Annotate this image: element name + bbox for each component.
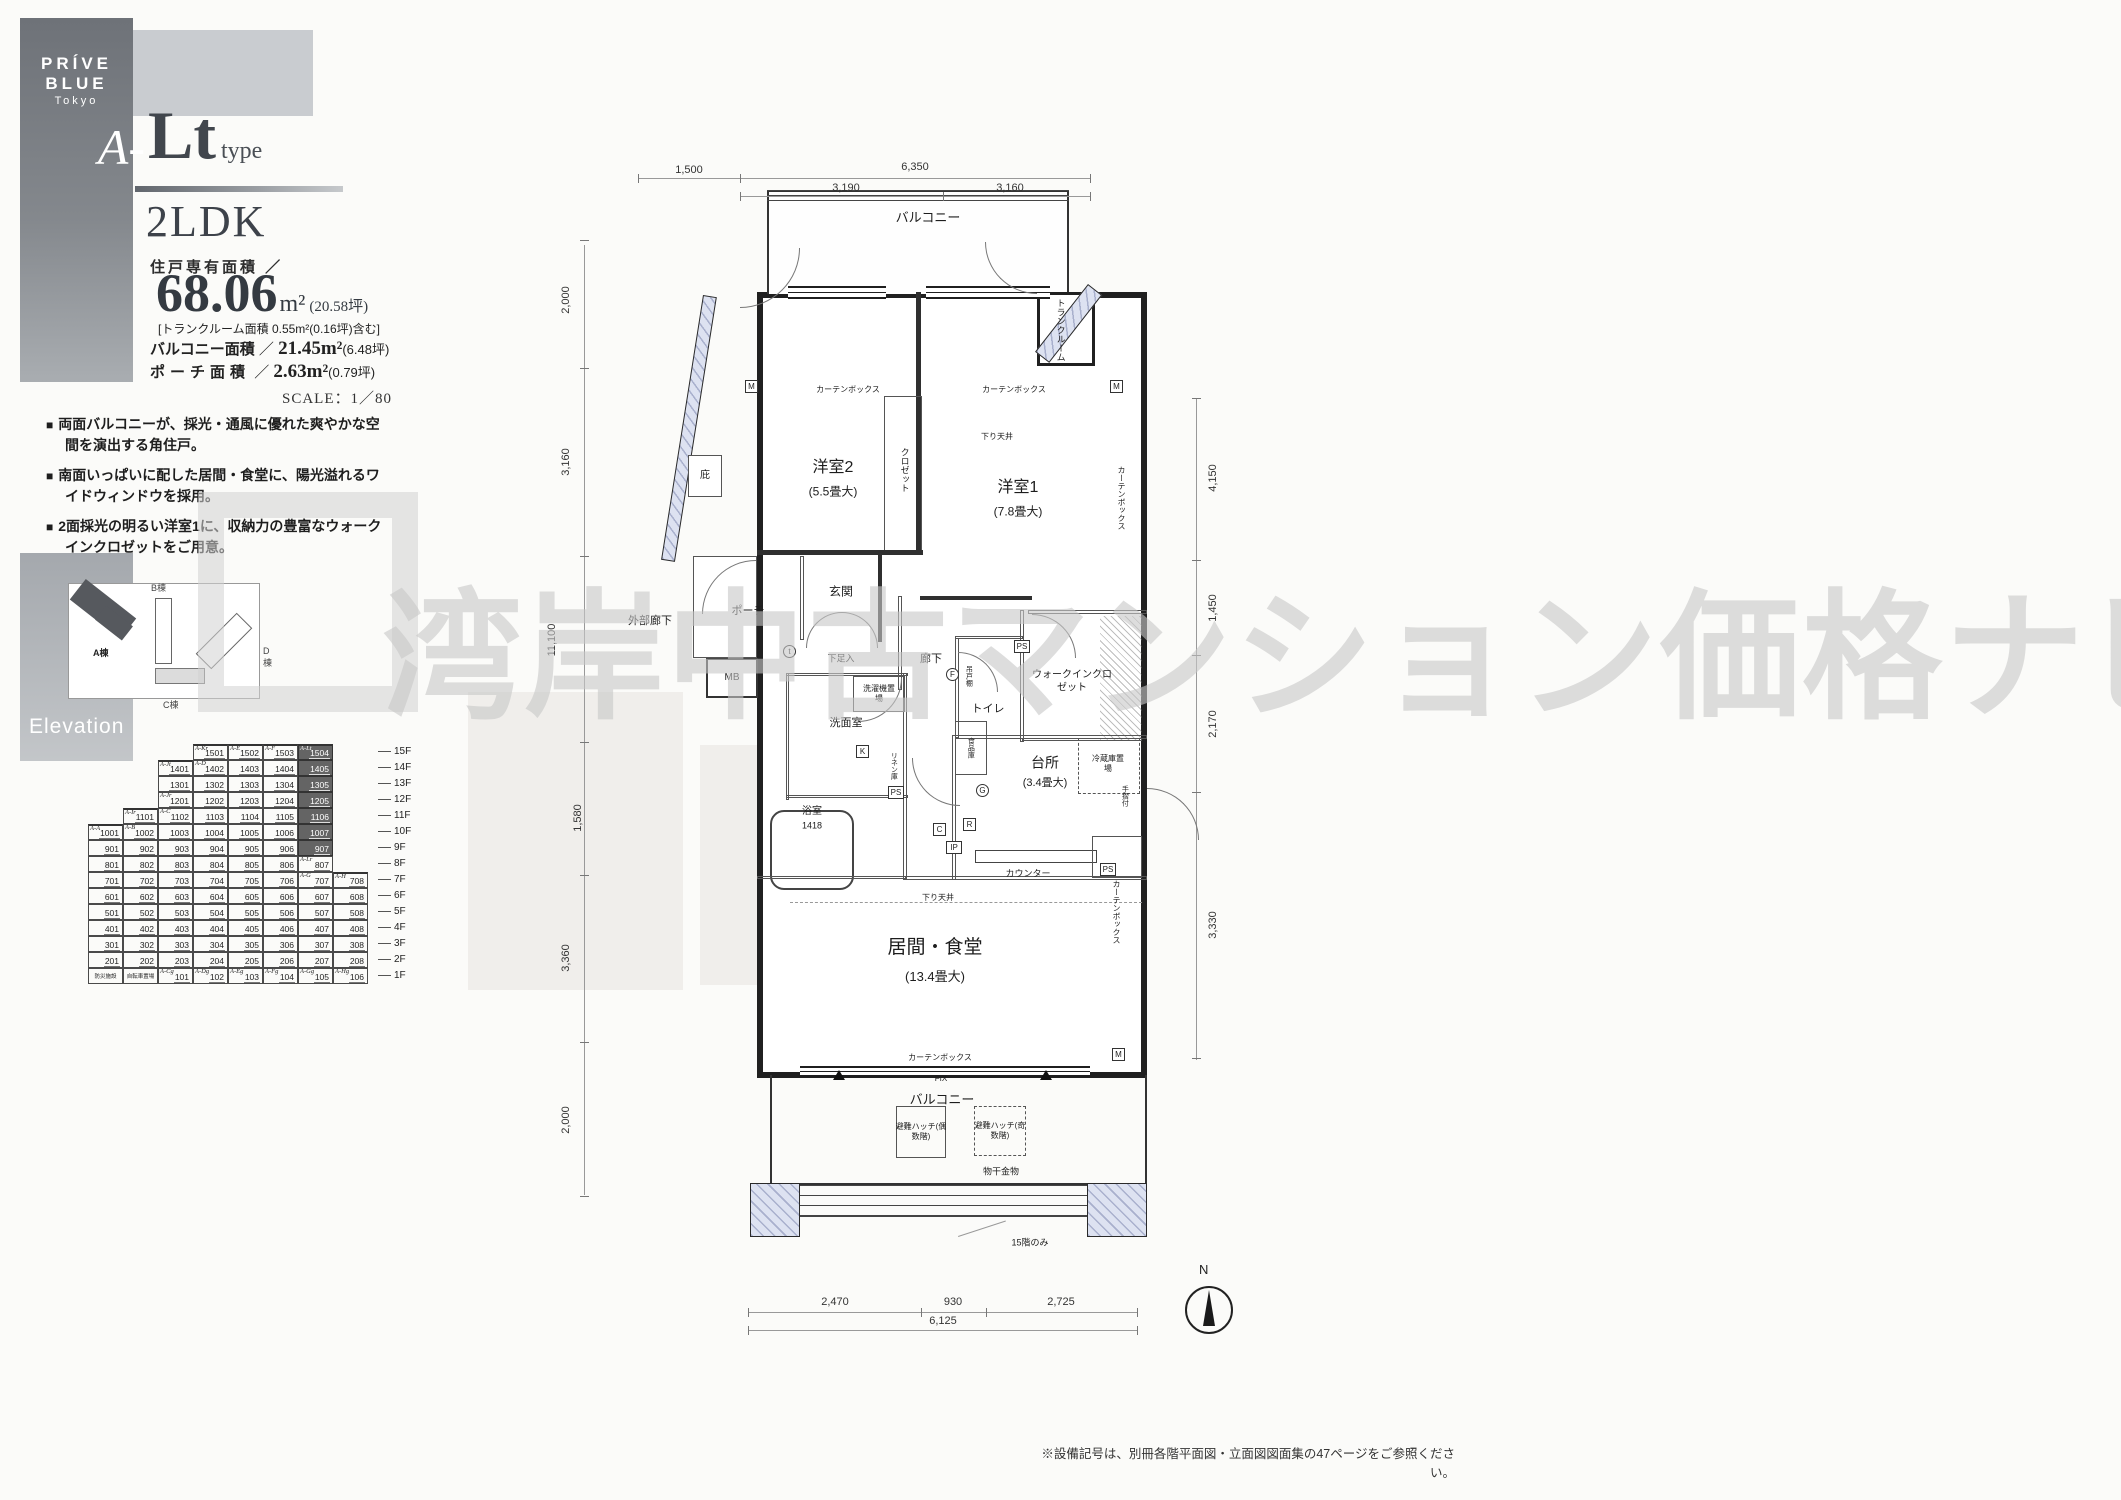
- building-d-label: D棟: [263, 646, 272, 669]
- dimension-tick: [580, 556, 589, 557]
- dimension-label: 2,470: [821, 1296, 849, 1308]
- dimension-label: 930: [944, 1296, 962, 1308]
- dimension-label: 6,125: [929, 1315, 957, 1327]
- elevation-cell: A-Gg105: [298, 968, 333, 984]
- plan-label: ウォークインクロゼット: [1031, 670, 1113, 695]
- dimension-tick: [921, 1308, 922, 1317]
- porch-area-tsubo: (0.79坪): [328, 365, 375, 380]
- plan-label: カーテンボックス: [1116, 466, 1126, 530]
- elevation-cell: A-Eg103: [228, 968, 263, 984]
- elevation-cell: 403: [158, 920, 193, 936]
- elevation-cell: 505: [228, 904, 263, 920]
- elevation-cell: 1404: [263, 760, 298, 776]
- dimension-tick: [986, 1308, 987, 1317]
- logo-line2: BLUE: [20, 74, 133, 94]
- elevation-cell: 704: [193, 872, 228, 888]
- plan-railband2: [800, 1185, 1087, 1217]
- plan-label: 15階のみ: [1011, 1237, 1048, 1248]
- plan-label: 浴室: [802, 806, 822, 819]
- plan-label: 廊下: [920, 653, 942, 667]
- unit-number: 307: [314, 940, 330, 951]
- elevation-cell: 1006: [263, 824, 298, 840]
- elevation-cell: 801: [88, 856, 123, 872]
- elevation-cell: 1004: [193, 824, 228, 840]
- elevation-cell: 608: [333, 888, 368, 904]
- unit-number: 204: [209, 956, 225, 967]
- dimension-label: 2,725: [1047, 1296, 1075, 1308]
- elevation-cell: 601: [88, 888, 123, 904]
- elevation-cell: 901: [88, 840, 123, 856]
- dimension-label: 2,000: [560, 286, 572, 314]
- unit-number: 303: [174, 940, 190, 951]
- dimension-tick: [1192, 398, 1201, 399]
- floor-label: 5F: [378, 906, 406, 917]
- plan-wall: [1087, 1183, 1147, 1237]
- elevation-cell: 701: [88, 872, 123, 888]
- elevation-cell: 1007: [298, 824, 333, 840]
- elevation-cell: 1203: [228, 792, 263, 808]
- unit-number: 1102: [170, 812, 190, 823]
- unit-number: 704: [209, 876, 225, 887]
- elevation-cell: 702: [123, 872, 158, 888]
- elevation-cell: A-Jt1401: [158, 760, 193, 776]
- plan-label: 洗濯機置場: [860, 684, 898, 704]
- elevation-cell: 503: [158, 904, 193, 920]
- elevation-cell: A-H708: [333, 872, 368, 888]
- unit-number: 805: [244, 860, 260, 871]
- unit-number: 1301: [169, 780, 190, 791]
- exclusive-area-value: 68.06m²(20.58坪): [156, 262, 368, 324]
- dimension-tick: [580, 875, 589, 876]
- plan-win: [788, 286, 886, 299]
- unit-number: 203: [174, 956, 190, 967]
- dimension-label: 6,350: [901, 161, 929, 173]
- dimension-tick: [580, 742, 589, 743]
- unit-number: 406: [279, 924, 295, 935]
- plan-label: (13.4畳大): [905, 969, 965, 985]
- unit-number: 1504: [309, 748, 330, 759]
- plan-iw: [920, 596, 1032, 600]
- elevation-cell: 406: [263, 920, 298, 936]
- elevation-cell: 302: [123, 936, 158, 952]
- elevation-cell: 205: [228, 952, 263, 968]
- unit-number: 防災施設: [89, 974, 122, 981]
- elevation-cell: 607: [298, 888, 333, 904]
- unit-number: 304: [209, 940, 225, 951]
- unit-number: 1303: [239, 780, 260, 791]
- elevation-cell: 508: [333, 904, 368, 920]
- elevation-cell: A-Lr807: [298, 856, 333, 872]
- elevation-cell: 1205: [298, 792, 333, 808]
- balcony-area-label: バルコニー面積: [150, 341, 255, 358]
- plan-label: クロゼット: [898, 448, 909, 493]
- dimension-tick: [740, 192, 741, 201]
- unit-type-label: A-H: [335, 873, 346, 880]
- elevation-cell: A-Jr1201: [158, 792, 193, 808]
- building-a-label: A棟: [93, 646, 109, 659]
- plan-label: バルコニー: [910, 1092, 975, 1108]
- elevation-cell: 602: [123, 888, 158, 904]
- plan-label: 吊戸棚: [964, 666, 973, 687]
- unit-number: 604: [209, 892, 225, 903]
- area-number: 68.06: [156, 263, 278, 323]
- dimension-tick: [748, 1308, 749, 1317]
- building-c-shape: [155, 668, 205, 684]
- brand-logo: PRÍVE BLUE Tokyo: [20, 54, 133, 108]
- elevation-cell: A-D1402: [193, 760, 228, 776]
- elevation-cell: A-Lt1504: [298, 744, 333, 760]
- unit-number: 706: [279, 876, 295, 887]
- footer-note: ※設備記号は、別冊各階平面図・立面図図面集の47ページをご参照ください。: [1035, 1443, 1455, 1481]
- elevation-cell: 703: [158, 872, 193, 888]
- unit-number: 505: [244, 908, 260, 919]
- elevation-cell: A-Hg106: [333, 968, 368, 984]
- elevation-cell: A-G707: [298, 872, 333, 888]
- balcony-area-tsubo: (6.48坪): [342, 342, 389, 357]
- unit-number: 606: [279, 892, 295, 903]
- equipment-symbol: K: [856, 745, 869, 758]
- dimension-tick: [1192, 792, 1201, 793]
- unit-number: 807: [314, 860, 330, 871]
- floor-label: 11F: [378, 810, 411, 821]
- unit-number: 602: [139, 892, 155, 903]
- dimension-label: 11,100: [546, 624, 558, 657]
- elevation-cell: 404: [193, 920, 228, 936]
- elevation-cell: 306: [263, 936, 298, 952]
- unit-number: 1103: [205, 812, 225, 823]
- vent-marker: [1040, 1070, 1052, 1080]
- unit-number: 1006: [274, 828, 295, 839]
- plan-dimline: [740, 196, 1090, 197]
- elevation-cell: 208: [333, 952, 368, 968]
- unit-number: 1205: [309, 796, 330, 807]
- unit-number: 302: [139, 940, 155, 951]
- unit-number: 1002: [134, 828, 155, 839]
- vent-marker: [833, 1070, 845, 1080]
- elevation-cell: 605: [228, 888, 263, 904]
- elevation-cell: A-E1502: [228, 744, 263, 760]
- equipment-symbol: M: [1110, 380, 1123, 393]
- unit-number: 408: [349, 924, 365, 935]
- floor-label: 13F: [378, 778, 411, 789]
- unit-number: 405: [244, 924, 260, 935]
- unit-number: 1106: [310, 812, 330, 823]
- dimension-tick: [1090, 174, 1091, 183]
- dimension-label: 3,160: [560, 448, 572, 476]
- elevation-cell: 501: [88, 904, 123, 920]
- plan-label: 台所: [1031, 754, 1059, 772]
- equipment-symbol: PS: [888, 786, 904, 799]
- plan-thin: [1028, 610, 1147, 614]
- elevation-cell: 1304: [263, 776, 298, 792]
- elevation-cell: 405: [228, 920, 263, 936]
- unit-number: 1403: [239, 764, 260, 775]
- unit-number: 605: [244, 892, 260, 903]
- compass-needle: [1203, 1290, 1215, 1326]
- dimension-tick: [943, 192, 944, 201]
- plan-dimline: [958, 1221, 1006, 1237]
- plan-dimline: [748, 1312, 1138, 1313]
- plan-wall: [750, 1183, 800, 1237]
- elevation-cell: 1103: [193, 808, 228, 824]
- plan-label: 物干金物: [983, 1166, 1019, 1177]
- plan-thin: [786, 673, 789, 800]
- heading-rule: [135, 186, 343, 192]
- plan-label: 避難ハッチ(奇数階): [974, 1121, 1026, 1141]
- elevation-cell: 1204: [263, 792, 298, 808]
- unit-number: 104: [279, 972, 295, 983]
- brand-sidebar: PRÍVE BLUE Tokyo A-: [20, 18, 133, 382]
- dimension-tick: [1192, 1058, 1201, 1059]
- plan-label: (7.8畳大): [994, 505, 1043, 520]
- elevation-cell: 504: [193, 904, 228, 920]
- unit-number: 502: [139, 908, 155, 919]
- plan-label: 手摺付: [1120, 786, 1129, 807]
- elevation-cell: 1301: [158, 776, 193, 792]
- unit-number: 1104: [240, 812, 260, 823]
- building-c-label: C棟: [163, 698, 179, 711]
- plan-label: 玄関: [829, 585, 853, 600]
- dimension-label: 4,150: [1207, 464, 1219, 492]
- elevation-cell: 1403: [228, 760, 263, 776]
- unit-number: 402: [139, 924, 155, 935]
- elevation-cell: 907: [298, 840, 333, 856]
- area-tsubo: (20.58坪): [309, 299, 368, 315]
- unit-number: 1001: [99, 828, 120, 839]
- elevation-cell: 1105: [263, 808, 298, 824]
- dimension-label: 3,360: [560, 944, 572, 972]
- unit-number: 1502: [239, 748, 260, 759]
- unit-number: 1203: [239, 796, 260, 807]
- unit-type-label: A-Dg: [195, 968, 209, 975]
- plan-thin: [1020, 610, 1024, 742]
- unit-number: 701: [104, 876, 120, 887]
- floor-label: 7F: [378, 874, 406, 885]
- plan-label: FIX: [935, 1074, 947, 1084]
- plan-dimline: [1196, 398, 1197, 1060]
- equipment-symbol: M: [745, 380, 758, 393]
- unit-number: 705: [244, 876, 260, 887]
- plan-pale: [468, 692, 683, 990]
- unit-number: 905: [244, 844, 260, 855]
- elevation-cell: A-Cg101: [158, 968, 193, 984]
- elevation-cell: A-C1102: [158, 808, 193, 824]
- brochure-page: PRÍVE BLUE Tokyo A- Lttype 2LDK 住戸専有面積 ／…: [0, 0, 2121, 1500]
- dimension-label: 3,160: [996, 182, 1024, 194]
- dimension-tick: [580, 368, 589, 369]
- unit-type-label: A-Eg: [230, 968, 243, 975]
- plan-label: 下り天井: [922, 893, 954, 903]
- unit-number: 301: [104, 940, 120, 951]
- elevation-cell: 207: [298, 952, 333, 968]
- plan-label: 洋室1: [998, 478, 1039, 498]
- unit-number: 404: [209, 924, 225, 935]
- unit-number: 1304: [274, 780, 295, 791]
- unit-number: 208: [349, 956, 365, 967]
- plan-label: 居間・食堂: [887, 936, 982, 960]
- porch-area-value: 2.63m²: [273, 361, 328, 382]
- elevation-cell: A-A1001: [88, 824, 123, 840]
- plan-iw: [757, 550, 923, 555]
- compass-north-label: N: [1199, 1262, 1208, 1277]
- elevation-cell: 防災施設: [88, 968, 123, 984]
- unit-number: 508: [349, 908, 365, 919]
- unit-number: 308: [349, 940, 365, 951]
- dimension-label: 1,450: [1207, 594, 1219, 622]
- elevation-cell: A-Ir1101: [123, 808, 158, 824]
- elevation-cell: 1305: [298, 776, 333, 792]
- elevation-cell: 402: [123, 920, 158, 936]
- unit-number: 503: [174, 908, 190, 919]
- plan-dimline: [748, 1330, 1138, 1331]
- unit-number: 自転車置場: [124, 974, 157, 981]
- unit-type-name: Lt: [148, 97, 216, 173]
- elevation-cell: 905: [228, 840, 263, 856]
- floor-label: 4F: [378, 922, 406, 933]
- porch-area-line: ポーチ面積 ／ 2.63m²(0.79坪): [150, 361, 375, 383]
- elevation-cell: 606: [263, 888, 298, 904]
- unit-number: 103: [244, 972, 260, 983]
- equipment-symbol: PS: [1014, 640, 1030, 653]
- floor-label: 14F: [378, 762, 411, 773]
- unit-type-prefix: A-: [98, 118, 145, 176]
- plan-label: 避難ハッチ(偶数階): [895, 1122, 947, 1142]
- feature-item: 南面いっぱいに配した居間・食堂に、陽光溢れるワイドウィンドウを採用。: [46, 465, 391, 507]
- elevation-cell: 1405: [298, 760, 333, 776]
- unit-number: 1305: [309, 780, 330, 791]
- balcony-area-value: 21.45m²: [278, 338, 342, 359]
- unit-number: 407: [314, 924, 330, 935]
- unit-number: 1003: [169, 828, 190, 839]
- unit-number: 1007: [309, 828, 330, 839]
- unit-number: 1302: [204, 780, 225, 791]
- unit-number: 1404: [274, 764, 295, 775]
- elevation-cell: 1003: [158, 824, 193, 840]
- elevation-cell: 204: [193, 952, 228, 968]
- slash: ／: [259, 341, 274, 358]
- elevation-cell: A-Fg104: [263, 968, 298, 984]
- equipment-symbol: t: [783, 645, 796, 658]
- plan-dimline: [638, 178, 1090, 179]
- plan-thin: [800, 556, 804, 640]
- balcony-area-line: バルコニー面積 ／ 21.45m²(6.48坪): [150, 338, 389, 360]
- unit-number: 1405: [309, 764, 330, 775]
- unit-number: 607: [314, 892, 330, 903]
- dimension-tick: [1192, 560, 1201, 561]
- unit-number: 903: [174, 844, 190, 855]
- plan-label: (5.5畳大): [809, 485, 858, 500]
- unit-number: 907: [314, 844, 330, 855]
- elevation-cell: 201: [88, 952, 123, 968]
- plan-dashline: [790, 902, 1142, 903]
- layout-name: 2LDK: [146, 196, 266, 247]
- building-b-label: B棟: [151, 581, 166, 594]
- elevation-cell: 1106: [298, 808, 333, 824]
- elevation-cell: A-Kr1501: [193, 744, 228, 760]
- plan-iw: [878, 552, 882, 642]
- unit-number: 608: [349, 892, 365, 903]
- compass-icon: [1185, 1286, 1233, 1334]
- elevation-cell: A-F1503: [263, 744, 298, 760]
- elevation-cell: 202: [123, 952, 158, 968]
- elevation-cell: 904: [193, 840, 228, 856]
- feature-list: 両面バルコニーが、採光・通風に優れた爽やかな空間を演出する角住戸。南面いっぱいに…: [46, 414, 391, 567]
- elevation-cell: 902: [123, 840, 158, 856]
- dimension-tick: [580, 1042, 589, 1043]
- equipment-symbol: F: [946, 668, 959, 681]
- floor-label: 15F: [378, 746, 411, 757]
- dimension-tick: [740, 174, 741, 183]
- unit-number: 501: [104, 908, 120, 919]
- plan-label: カーテンボックス: [816, 385, 880, 395]
- unit-number: 703: [174, 876, 190, 887]
- building-d-shape: [196, 613, 253, 670]
- elevation-cell: 307: [298, 936, 333, 952]
- unit-number: 707: [314, 876, 330, 887]
- plan-label: 下り天井: [981, 432, 1013, 442]
- elevation-cell: 308: [333, 936, 368, 952]
- plan-label: カーテンボックス: [1111, 880, 1121, 944]
- unit-number: 906: [279, 844, 295, 855]
- unit-number: 507: [314, 908, 330, 919]
- unit-number: 1005: [239, 828, 260, 839]
- elevation-cell: 705: [228, 872, 263, 888]
- unit-number: 102: [209, 972, 225, 983]
- unit-type-label: A-Gg: [300, 968, 314, 975]
- equipment-symbol: M: [1112, 1048, 1125, 1061]
- plan-label: カーテンボックス: [908, 1053, 972, 1063]
- unit-number: 202: [139, 956, 155, 967]
- elevation-cell: 604: [193, 888, 228, 904]
- unit-number: 802: [139, 860, 155, 871]
- unit-type-label: A-Cg: [160, 968, 174, 975]
- unit-number: 101: [174, 972, 190, 983]
- elevation-title: Elevation: [29, 715, 124, 739]
- unit-number: 804: [209, 860, 225, 871]
- elevation-cell: 自転車置場: [123, 968, 158, 984]
- plan-label: 1418: [802, 820, 822, 831]
- equipment-symbol: R: [963, 818, 976, 831]
- unit-number: 403: [174, 924, 190, 935]
- feature-item: 両面バルコニーが、採光・通風に優れた爽やかな空間を演出する角住戸。: [46, 414, 391, 456]
- plan-label: カウンター: [1005, 868, 1050, 879]
- equipment-symbol: C: [933, 823, 946, 836]
- unit-number: 1204: [274, 796, 295, 807]
- unit-number: 401: [104, 924, 120, 935]
- scale-note: SCALE：1／80: [282, 387, 392, 408]
- unit-number: 105: [314, 972, 330, 983]
- elevation-cell: 407: [298, 920, 333, 936]
- dimension-tick: [1137, 1326, 1138, 1335]
- plan-label: ポーチ: [732, 605, 765, 619]
- elevation-cell: 206: [263, 952, 298, 968]
- unit-number: 201: [104, 956, 120, 967]
- dimension-tick: [580, 1196, 589, 1197]
- plan-label: 洗面室: [830, 717, 863, 731]
- unit-number: 708: [349, 876, 365, 887]
- unit-type-suffix: type: [221, 138, 262, 164]
- unit-number: 306: [279, 940, 295, 951]
- building-b-shape: [155, 598, 172, 664]
- floor-label: 6F: [378, 890, 406, 901]
- elevation-cell: A-B1002: [123, 824, 158, 840]
- unit-number: 205: [244, 956, 260, 967]
- dimension-label: 2,000: [560, 1106, 572, 1134]
- elevation-cell: 806: [263, 856, 298, 872]
- plan-wall: [661, 295, 717, 562]
- equipment-symbol: PS: [1100, 863, 1116, 876]
- elevation-cell: 1303: [228, 776, 263, 792]
